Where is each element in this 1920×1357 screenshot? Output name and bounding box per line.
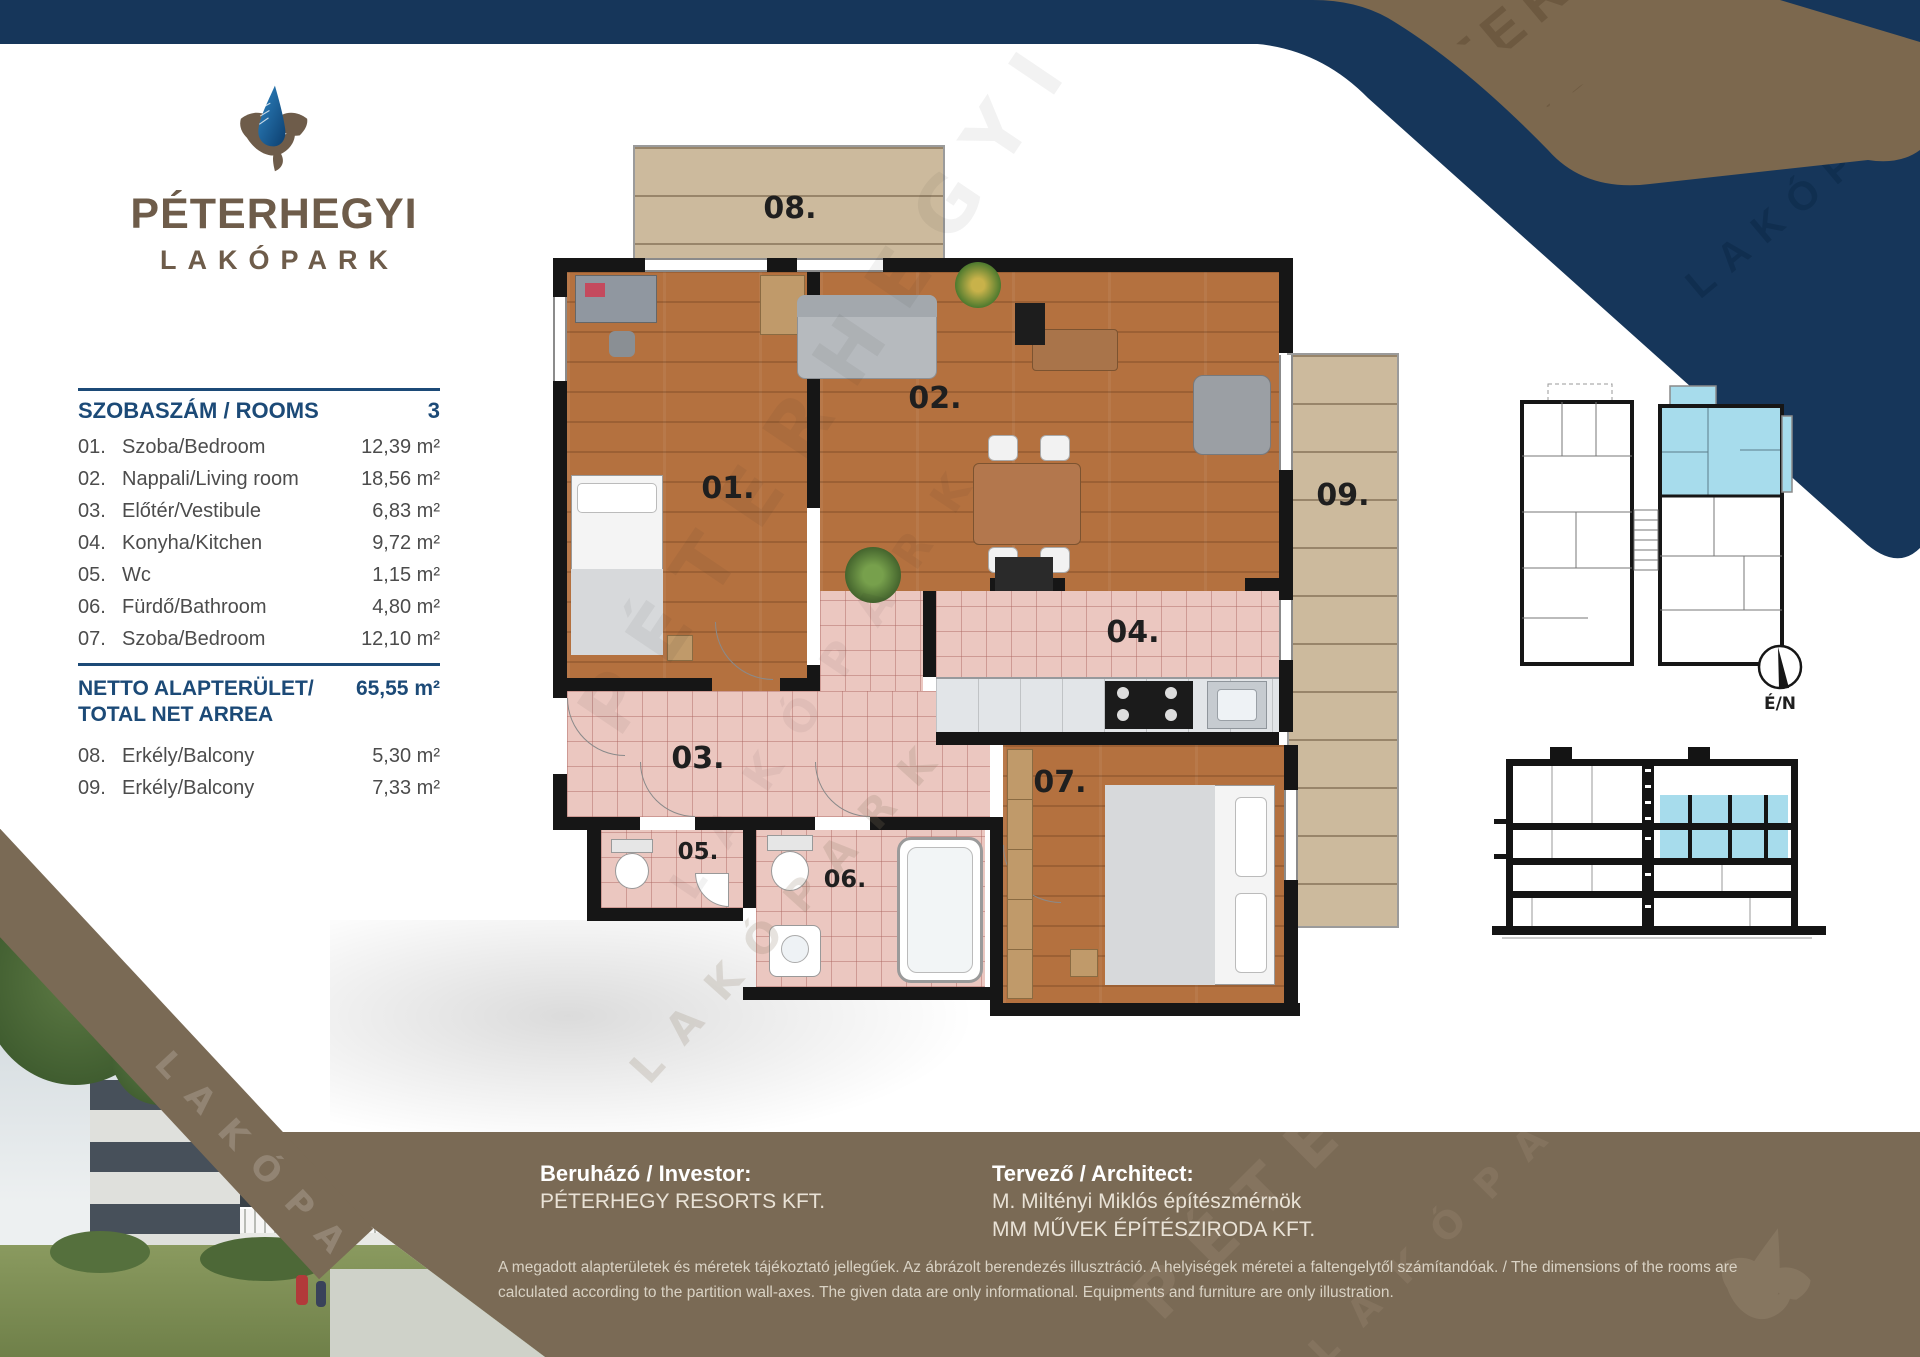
dining-table: [973, 463, 1081, 545]
toilet-bowl: [615, 853, 649, 889]
table-rule-bottom: [78, 663, 440, 666]
dining-chair: [988, 435, 1018, 461]
total-label-line1: NETTO ALAPTERÜLET/: [78, 676, 314, 702]
wall: [1279, 258, 1293, 353]
desk-pad: [585, 283, 605, 297]
row-name: Erkély/Balcony: [122, 740, 372, 772]
sink-basin: [1217, 689, 1257, 721]
room-label-01: 01.: [673, 471, 783, 506]
table-row: 08.Erkély/Balcony5,30 m²: [78, 740, 440, 772]
wall: [807, 665, 820, 691]
row-num: 08.: [78, 740, 122, 772]
floor-plan: 01. 02. 03. 04. 05. 06. 07. 08. 09.: [545, 145, 1405, 1025]
row-name: Konyha/Kitchen: [122, 527, 372, 559]
photo-bush: [50, 1231, 150, 1273]
row-area: 9,72 m²: [372, 527, 440, 559]
wall: [990, 817, 1003, 1003]
compass-icon: [1744, 634, 1816, 692]
pillow: [1235, 797, 1267, 877]
total-area-block: NETTO ALAPTERÜLET/ TOTAL NET ARREA 65,55…: [78, 676, 440, 728]
toilet: [611, 839, 653, 853]
wall: [990, 1003, 1300, 1016]
table-header: SZOBASZÁM / ROOMS 3: [78, 391, 440, 431]
photo-person: [316, 1281, 326, 1307]
wall: [567, 678, 712, 691]
total-label: NETTO ALAPTERÜLET/ TOTAL NET ARREA: [78, 676, 314, 728]
brochure-page: PÉTERHEGYI LAKÓPARK PÉTERHEGYI LAKÓPARK …: [0, 0, 1920, 1357]
table-row: 01.Szoba/Bedroom12,39 m²: [78, 431, 440, 463]
kitchen-island: [995, 557, 1053, 591]
table-row: 05.Wc1,15 m²: [78, 559, 440, 591]
burner: [1165, 687, 1177, 699]
row-num: 06.: [78, 591, 122, 623]
wall: [743, 987, 999, 1000]
investor-title: Beruházó / Investor:: [540, 1160, 825, 1188]
plant: [955, 262, 1001, 308]
highlight-floor: [1660, 830, 1788, 858]
wall: [553, 817, 640, 830]
dining-chair: [1040, 435, 1070, 461]
row-area: 18,56 m²: [361, 463, 440, 495]
window: [797, 258, 883, 272]
room-label-09: 09.: [1287, 478, 1399, 513]
toilet: [767, 835, 813, 851]
burner: [1165, 709, 1177, 721]
chair: [609, 331, 635, 357]
table-header-label: SZOBASZÁM / ROOMS: [78, 391, 319, 431]
row-num: 04.: [78, 527, 122, 559]
blanket: [1105, 785, 1215, 985]
row-name: Erkély/Balcony: [122, 772, 372, 804]
blanket: [571, 569, 663, 655]
row-area: 1,15 m²: [372, 559, 440, 591]
room-label-03: 03.: [643, 741, 753, 776]
row-name: Szoba/Bedroom: [122, 623, 361, 655]
row-name: Fürdő/Bathroom: [122, 591, 372, 623]
room-label-05: 05.: [655, 839, 741, 865]
sofa-back: [797, 295, 937, 317]
room-table: SZOBASZÁM / ROOMS 3 01.Szoba/Bedroom12,3…: [78, 388, 440, 804]
tv-cabinet: [1015, 303, 1045, 345]
window: [1284, 790, 1298, 880]
wall: [923, 591, 936, 677]
vestibule-03-floor: [567, 691, 990, 817]
architect-name: M. Miltényi Miklós építészmérnök: [992, 1188, 1315, 1216]
pillow: [577, 483, 657, 513]
photo-person: [296, 1275, 308, 1305]
architect-title: Tervező / Architect:: [992, 1160, 1315, 1188]
window: [645, 258, 767, 272]
washbasin-bowl: [781, 935, 809, 963]
room-count: 3: [428, 391, 440, 431]
watermark-text: LAKÓPARK: [1300, 1132, 1661, 1357]
total-label-line2: TOTAL NET ARREA: [78, 702, 314, 728]
architect-block: Tervező / Architect: M. Miltényi Miklós …: [992, 1160, 1315, 1244]
row-num: 03.: [78, 495, 122, 527]
investor-block: Beruházó / Investor: PÉTERHEGY RESORTS K…: [540, 1160, 825, 1216]
room-label-08: 08.: [695, 191, 885, 226]
brand-logo-icon: [225, 82, 323, 174]
table-row: 07.Szoba/Bedroom12,10 m²: [78, 623, 440, 655]
total-value: 65,55 m²: [356, 676, 440, 728]
plant: [845, 547, 901, 603]
wall: [695, 817, 815, 830]
row-area: 12,39 m²: [361, 431, 440, 463]
pillow: [1235, 893, 1267, 973]
row-area: 6,83 m²: [372, 495, 440, 527]
wall: [1245, 578, 1279, 591]
disclaimer-text: A megadott alapterületek és méretek tájé…: [498, 1256, 1798, 1305]
burner: [1117, 709, 1129, 721]
brand-name: PÉTERHEGYI: [90, 190, 458, 239]
row-num: 02.: [78, 463, 122, 495]
row-name: Előtér/Vestibule: [122, 495, 372, 527]
investor-name: PÉTERHEGY RESORTS KFT.: [540, 1188, 825, 1216]
wall: [870, 817, 990, 830]
room-label-06: 06.: [800, 865, 890, 893]
room-label-02: 02.: [880, 381, 990, 416]
row-num: 01.: [78, 431, 122, 463]
nightstand: [1070, 949, 1098, 977]
balcony-09-deck: [1287, 353, 1399, 928]
wall: [587, 908, 743, 921]
balcony-door: [1279, 355, 1293, 470]
table-row: 03.Előtér/Vestibule6,83 m²: [78, 495, 440, 527]
bathtub-inner: [907, 847, 973, 973]
row-num: 09.: [78, 772, 122, 804]
table-row: 04.Konyha/Kitchen9,72 m²: [78, 527, 440, 559]
table-row: 09.Erkély/Balcony7,33 m²: [78, 772, 440, 804]
table-row: 02.Nappali/Living room18,56 m²: [78, 463, 440, 495]
compass-label: É/N: [1744, 694, 1816, 714]
highlight-floor: [1660, 795, 1788, 823]
row-name: Nappali/Living room: [122, 463, 361, 495]
armchair: [1193, 375, 1271, 455]
row-num: 07.: [78, 623, 122, 655]
wall: [936, 732, 1279, 745]
window: [1279, 600, 1293, 660]
brand-subname: LAKÓPARK: [90, 245, 458, 276]
burner: [1117, 687, 1129, 699]
row-name: Wc: [122, 559, 372, 591]
row-area: 4,80 m²: [372, 591, 440, 623]
highlight-side-balcony: [1782, 416, 1792, 492]
brand-block: PÉTERHEGYI LAKÓPARK: [90, 82, 458, 276]
wall: [743, 830, 756, 908]
row-name: Szoba/Bedroom: [122, 431, 361, 463]
wall: [780, 678, 807, 691]
window: [553, 297, 567, 381]
row-area: 5,30 m²: [372, 740, 440, 772]
architect-company: MM MŰVEK ÉPÍTÉSZIRODA KFT.: [992, 1216, 1315, 1244]
building-section: [1492, 733, 1826, 948]
room-label-07: 07.: [1005, 765, 1115, 800]
row-area: 7,33 m²: [372, 772, 440, 804]
table-row: 06.Fürdő/Bathroom4,80 m²: [78, 591, 440, 623]
row-area: 12,10 m²: [361, 623, 440, 655]
room-label-04: 04.: [1078, 615, 1188, 650]
row-num: 05.: [78, 559, 122, 591]
corridor-floor: [820, 591, 923, 701]
nightstand: [667, 635, 693, 661]
entry-door-opening: [553, 698, 567, 774]
